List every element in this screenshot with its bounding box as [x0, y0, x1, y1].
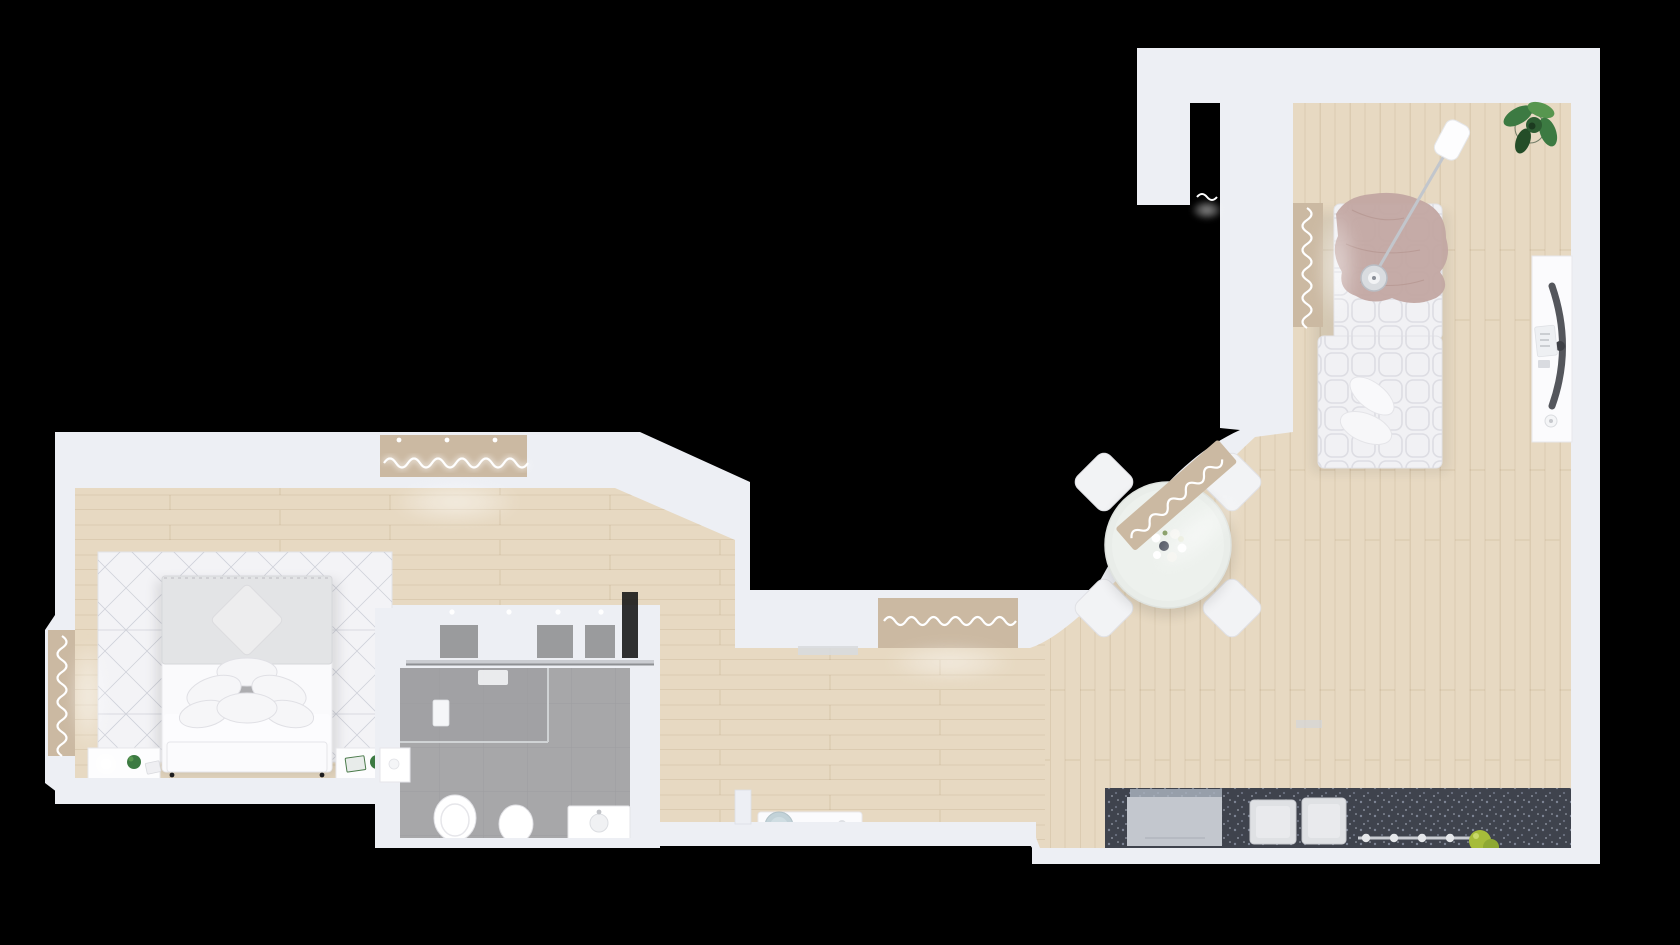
closet-door-3 — [585, 625, 615, 658]
bidet — [499, 805, 533, 843]
window-living-left — [1293, 203, 1358, 328]
closet-door-1 — [440, 625, 478, 658]
wall-stub-top — [1137, 100, 1190, 205]
plant-left-icon — [127, 755, 141, 769]
headboard — [167, 742, 327, 772]
shower-control — [433, 700, 449, 726]
side-cabinet-bowl — [389, 759, 399, 769]
toilet — [434, 795, 476, 841]
closet-front-edge — [406, 660, 654, 664]
curtain-top-gap — [1197, 194, 1217, 200]
closet-front-seam — [406, 664, 654, 666]
bathroom-block — [375, 592, 660, 845]
table-lamp-left — [101, 759, 112, 770]
doormat — [798, 646, 858, 655]
closet-door-2 — [537, 625, 573, 658]
desk-papers — [1534, 325, 1557, 357]
window-hall-top — [878, 598, 1018, 682]
cabinet-top-strip — [1130, 789, 1222, 797]
bathroom-bottom-wall-patch — [375, 838, 660, 848]
bedroom — [88, 552, 404, 780]
range-hood — [1296, 720, 1322, 728]
floor-plan-stage — [0, 0, 1680, 945]
desk-area — [1532, 256, 1572, 442]
vanity-basin — [590, 814, 608, 832]
shower-zone — [400, 668, 548, 742]
sink-basin-left — [1256, 806, 1290, 838]
bed-foot-left — [170, 773, 175, 778]
wall-stub-entry — [735, 790, 751, 824]
sink-basin-right — [1308, 804, 1340, 838]
hall-bottom-wall-patch — [648, 822, 1036, 846]
desk-item — [1538, 360, 1550, 368]
shower-shelf — [478, 670, 508, 685]
kitchen-bottom-wall-patch — [1032, 848, 1600, 864]
window-top-gap — [1191, 194, 1223, 220]
book-right — [345, 756, 366, 773]
decor-left — [145, 761, 161, 775]
plant-left-highlight — [129, 757, 134, 762]
bed-foot-right — [320, 773, 325, 778]
floor-plan-svg — [0, 0, 1680, 945]
vanity-faucet — [597, 810, 602, 815]
bedroom-bottom-wall-patch — [55, 778, 392, 804]
bathroom-door-gap — [622, 592, 638, 658]
